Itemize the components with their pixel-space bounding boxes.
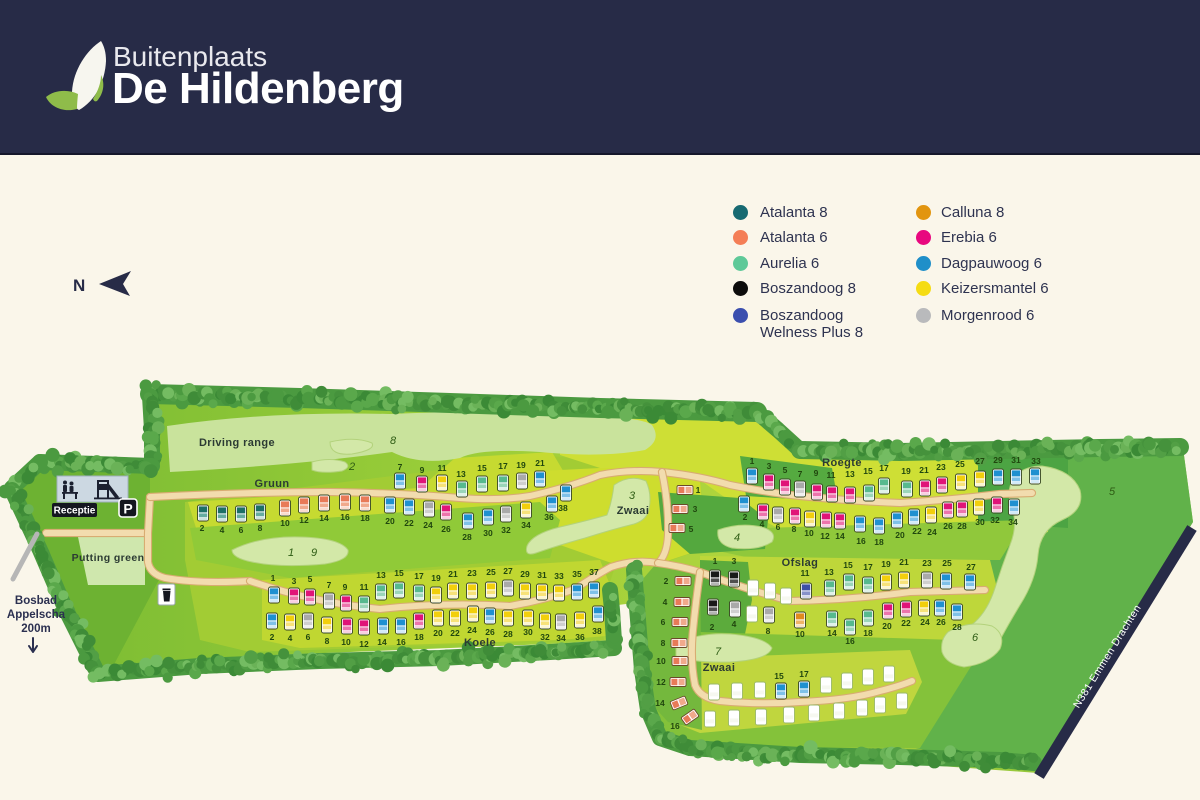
svg-text:23: 23 bbox=[936, 462, 946, 472]
svg-text:14: 14 bbox=[377, 637, 387, 647]
svg-text:12: 12 bbox=[820, 531, 830, 541]
svg-text:17: 17 bbox=[498, 461, 508, 471]
svg-text:16: 16 bbox=[670, 721, 680, 731]
svg-text:31: 31 bbox=[537, 570, 547, 580]
svg-text:11: 11 bbox=[360, 582, 369, 592]
svg-text:4: 4 bbox=[288, 633, 293, 643]
svg-text:Zwaai: Zwaai bbox=[703, 662, 736, 674]
svg-text:19: 19 bbox=[431, 573, 441, 583]
svg-text:25: 25 bbox=[942, 558, 952, 568]
svg-text:1: 1 bbox=[713, 556, 718, 566]
svg-text:26: 26 bbox=[485, 627, 495, 637]
svg-text:24: 24 bbox=[423, 520, 433, 530]
svg-text:15: 15 bbox=[477, 463, 487, 473]
svg-text:17: 17 bbox=[863, 562, 873, 572]
svg-text:27: 27 bbox=[966, 562, 976, 572]
svg-text:32: 32 bbox=[501, 525, 511, 535]
svg-text:7: 7 bbox=[715, 646, 722, 658]
svg-text:3: 3 bbox=[767, 461, 772, 471]
svg-text:1: 1 bbox=[696, 485, 701, 495]
svg-text:9: 9 bbox=[420, 465, 425, 475]
svg-text:38: 38 bbox=[592, 626, 602, 636]
svg-text:19: 19 bbox=[881, 559, 891, 569]
svg-text:16: 16 bbox=[845, 636, 855, 646]
svg-text:14: 14 bbox=[835, 531, 845, 541]
svg-text:6: 6 bbox=[972, 632, 979, 644]
svg-text:1: 1 bbox=[288, 547, 294, 559]
svg-text:24: 24 bbox=[920, 617, 930, 627]
svg-text:9: 9 bbox=[814, 468, 819, 478]
svg-text:4: 4 bbox=[732, 619, 737, 629]
svg-text:34: 34 bbox=[556, 633, 566, 643]
svg-text:7: 7 bbox=[798, 469, 803, 479]
svg-text:8: 8 bbox=[390, 435, 397, 447]
svg-text:30: 30 bbox=[523, 627, 533, 637]
svg-text:14: 14 bbox=[319, 513, 329, 523]
svg-text:Koele: Koele bbox=[464, 637, 496, 649]
svg-text:7: 7 bbox=[398, 462, 403, 472]
svg-text:8: 8 bbox=[766, 626, 771, 636]
svg-text:37: 37 bbox=[589, 567, 599, 577]
svg-text:P: P bbox=[123, 501, 132, 517]
svg-text:2: 2 bbox=[743, 512, 748, 522]
svg-text:38: 38 bbox=[558, 503, 568, 513]
svg-text:5: 5 bbox=[1109, 486, 1116, 498]
svg-text:11: 11 bbox=[801, 568, 810, 578]
svg-text:25: 25 bbox=[955, 459, 965, 469]
svg-text:21: 21 bbox=[535, 458, 545, 468]
svg-text:10: 10 bbox=[656, 656, 666, 666]
svg-text:Zwaai: Zwaai bbox=[617, 505, 650, 517]
svg-text:28: 28 bbox=[503, 629, 513, 639]
svg-text:18: 18 bbox=[863, 628, 873, 638]
svg-text:8: 8 bbox=[792, 524, 797, 534]
svg-text:18: 18 bbox=[360, 513, 370, 523]
svg-text:3: 3 bbox=[292, 576, 297, 586]
svg-text:13: 13 bbox=[845, 469, 855, 479]
svg-text:2: 2 bbox=[710, 622, 715, 632]
svg-text:16: 16 bbox=[340, 512, 350, 522]
svg-text:Bosbad: Bosbad bbox=[15, 595, 57, 607]
svg-text:Receptie: Receptie bbox=[54, 506, 96, 517]
svg-text:20: 20 bbox=[433, 628, 443, 638]
svg-text:12: 12 bbox=[299, 515, 309, 525]
svg-text:22: 22 bbox=[404, 518, 414, 528]
svg-text:200m: 200m bbox=[21, 623, 50, 635]
svg-text:1: 1 bbox=[750, 456, 755, 466]
svg-text:18: 18 bbox=[414, 632, 424, 642]
svg-text:11: 11 bbox=[827, 470, 836, 480]
svg-text:18: 18 bbox=[874, 537, 884, 547]
svg-text:4: 4 bbox=[734, 532, 740, 544]
svg-text:13: 13 bbox=[824, 567, 834, 577]
svg-text:10: 10 bbox=[280, 518, 290, 528]
svg-text:15: 15 bbox=[863, 466, 873, 476]
svg-text:5: 5 bbox=[783, 465, 788, 475]
svg-text:22: 22 bbox=[912, 526, 922, 536]
svg-text:34: 34 bbox=[1008, 517, 1018, 527]
svg-text:17: 17 bbox=[799, 669, 809, 679]
svg-text:21: 21 bbox=[919, 465, 929, 475]
svg-text:28: 28 bbox=[957, 521, 967, 531]
svg-text:12: 12 bbox=[359, 639, 369, 649]
svg-text:3: 3 bbox=[629, 490, 636, 502]
svg-text:16: 16 bbox=[396, 637, 406, 647]
svg-text:29: 29 bbox=[520, 569, 530, 579]
svg-text:34: 34 bbox=[521, 520, 531, 530]
svg-text:23: 23 bbox=[922, 558, 932, 568]
svg-text:28: 28 bbox=[462, 532, 472, 542]
svg-text:10: 10 bbox=[341, 637, 351, 647]
svg-text:20: 20 bbox=[385, 516, 395, 526]
svg-text:13: 13 bbox=[456, 469, 466, 479]
svg-text:8: 8 bbox=[258, 523, 263, 533]
svg-text:2: 2 bbox=[664, 576, 669, 586]
svg-text:30: 30 bbox=[483, 528, 493, 538]
svg-text:28: 28 bbox=[952, 622, 962, 632]
svg-text:23: 23 bbox=[467, 568, 477, 578]
svg-text:3: 3 bbox=[693, 504, 698, 514]
svg-text:Driving range: Driving range bbox=[199, 437, 275, 449]
svg-text:21: 21 bbox=[899, 557, 909, 567]
svg-text:4: 4 bbox=[220, 525, 225, 535]
svg-text:Ofslag: Ofslag bbox=[782, 557, 819, 569]
svg-text:21: 21 bbox=[448, 569, 458, 579]
svg-text:26: 26 bbox=[441, 524, 451, 534]
svg-text:29: 29 bbox=[993, 455, 1003, 465]
svg-text:13: 13 bbox=[376, 570, 386, 580]
svg-text:22: 22 bbox=[901, 618, 911, 628]
svg-text:32: 32 bbox=[540, 632, 550, 642]
svg-text:15: 15 bbox=[774, 671, 784, 681]
svg-text:14: 14 bbox=[655, 698, 665, 708]
svg-text:7: 7 bbox=[327, 580, 332, 590]
svg-text:1: 1 bbox=[271, 573, 276, 583]
svg-text:19: 19 bbox=[901, 466, 911, 476]
svg-text:6: 6 bbox=[661, 617, 666, 627]
svg-text:6: 6 bbox=[306, 632, 311, 642]
svg-text:6: 6 bbox=[776, 522, 781, 532]
svg-text:16: 16 bbox=[856, 536, 866, 546]
svg-text:15: 15 bbox=[394, 568, 404, 578]
svg-text:5: 5 bbox=[308, 574, 313, 584]
svg-text:25: 25 bbox=[486, 567, 496, 577]
svg-text:36: 36 bbox=[575, 632, 585, 642]
svg-text:4: 4 bbox=[663, 597, 668, 607]
svg-text:20: 20 bbox=[895, 530, 905, 540]
svg-text:10: 10 bbox=[804, 528, 814, 538]
svg-text:2: 2 bbox=[270, 632, 275, 642]
svg-text:31: 31 bbox=[1011, 455, 1021, 465]
svg-text:35: 35 bbox=[572, 569, 582, 579]
svg-text:27: 27 bbox=[503, 566, 513, 576]
svg-text:5: 5 bbox=[689, 524, 694, 534]
svg-text:27: 27 bbox=[975, 456, 985, 466]
svg-text:22: 22 bbox=[450, 628, 460, 638]
svg-text:10: 10 bbox=[795, 629, 805, 639]
svg-text:Appelscha: Appelscha bbox=[7, 609, 66, 621]
svg-text:9: 9 bbox=[311, 547, 317, 559]
svg-text:6: 6 bbox=[239, 525, 244, 535]
svg-text:17: 17 bbox=[414, 571, 424, 581]
svg-text:19: 19 bbox=[516, 460, 526, 470]
svg-text:36: 36 bbox=[544, 512, 554, 522]
svg-text:17: 17 bbox=[879, 463, 889, 473]
svg-text:Putting green: Putting green bbox=[72, 552, 145, 564]
svg-text:Roegte: Roegte bbox=[822, 457, 862, 469]
svg-text:20: 20 bbox=[882, 621, 892, 631]
svg-text:24: 24 bbox=[467, 625, 477, 635]
svg-text:30: 30 bbox=[975, 517, 985, 527]
svg-text:4: 4 bbox=[760, 519, 765, 529]
svg-text:26: 26 bbox=[936, 617, 946, 627]
svg-text:33: 33 bbox=[1031, 456, 1041, 466]
svg-text:33: 33 bbox=[554, 571, 564, 581]
svg-text:2: 2 bbox=[200, 523, 205, 533]
svg-text:9: 9 bbox=[343, 582, 348, 592]
svg-text:8: 8 bbox=[661, 638, 666, 648]
svg-text:32: 32 bbox=[990, 515, 1000, 525]
svg-text:2: 2 bbox=[348, 461, 355, 473]
svg-text:24: 24 bbox=[927, 527, 937, 537]
svg-text:Gruun: Gruun bbox=[255, 478, 290, 490]
svg-text:12: 12 bbox=[656, 677, 666, 687]
svg-text:26: 26 bbox=[943, 521, 953, 531]
svg-text:8: 8 bbox=[325, 636, 330, 646]
svg-text:15: 15 bbox=[843, 560, 853, 570]
svg-text:14: 14 bbox=[827, 628, 837, 638]
svg-text:11: 11 bbox=[438, 463, 447, 473]
svg-text:3: 3 bbox=[732, 556, 737, 566]
